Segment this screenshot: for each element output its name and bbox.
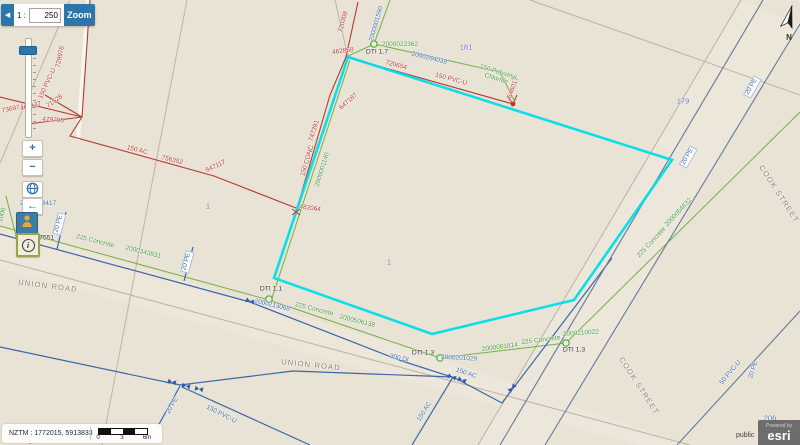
zoom-in-button[interactable]: +	[22, 140, 43, 157]
red-pipe-lines	[0, 0, 513, 212]
scale-ratio-input[interactable]	[29, 8, 61, 23]
map-canvas[interactable]: 729978 150 PVC-U ( 73697 ) 467137 71528 …	[0, 0, 800, 445]
parcel-number: 1	[206, 202, 210, 210]
zoom-out-button[interactable]: −	[22, 159, 43, 176]
info-icon: i	[22, 239, 35, 252]
pipe-label: 2000022362	[382, 42, 418, 49]
asset-label: DTI 1.3	[412, 351, 434, 358]
parcel-number: 1	[387, 258, 391, 266]
north-label: N	[786, 33, 792, 42]
scale-ratio-prefix: 1 :	[17, 11, 26, 20]
coordinate-readout: NZTM : 1772015, 5913833	[9, 430, 93, 437]
zoom-slider-ticks	[33, 58, 36, 134]
globe-icon	[26, 186, 39, 198]
asset-label: DTI 1.3	[563, 348, 585, 355]
parcel-number: 179	[677, 97, 690, 105]
full-extent-button[interactable]	[22, 181, 43, 198]
access-level-label: public	[736, 432, 754, 439]
esri-attribution: Powered by esri	[758, 420, 800, 445]
zoom-slider-handle[interactable]	[19, 46, 37, 55]
scale-tick: 6m	[143, 435, 151, 441]
scale-widget: ◀ 1 : Zoom	[1, 4, 95, 26]
scale-tick: 0	[96, 435, 99, 441]
scale-tick: 3	[120, 435, 123, 441]
person-icon	[20, 214, 34, 233]
asset-label: DTI 1.1	[260, 287, 282, 294]
collapse-panel-button[interactable]: ◀	[1, 4, 14, 26]
asset-label: DTI 1.7	[366, 50, 388, 57]
status-divider	[90, 427, 91, 440]
status-bar: NZTM : 1772015, 5913833 0 3 6m	[2, 424, 162, 443]
back-arrow-icon: ←	[27, 200, 38, 212]
scale-ratio-section: 1 :	[14, 4, 64, 26]
esri-logo: esri	[767, 429, 790, 442]
scale-bar	[98, 428, 148, 435]
identify-person-tool[interactable]	[16, 212, 38, 234]
info-tool[interactable]: i	[16, 233, 40, 257]
zoom-button[interactable]: Zoom	[64, 4, 95, 26]
parcel-number: 181	[460, 43, 473, 51]
